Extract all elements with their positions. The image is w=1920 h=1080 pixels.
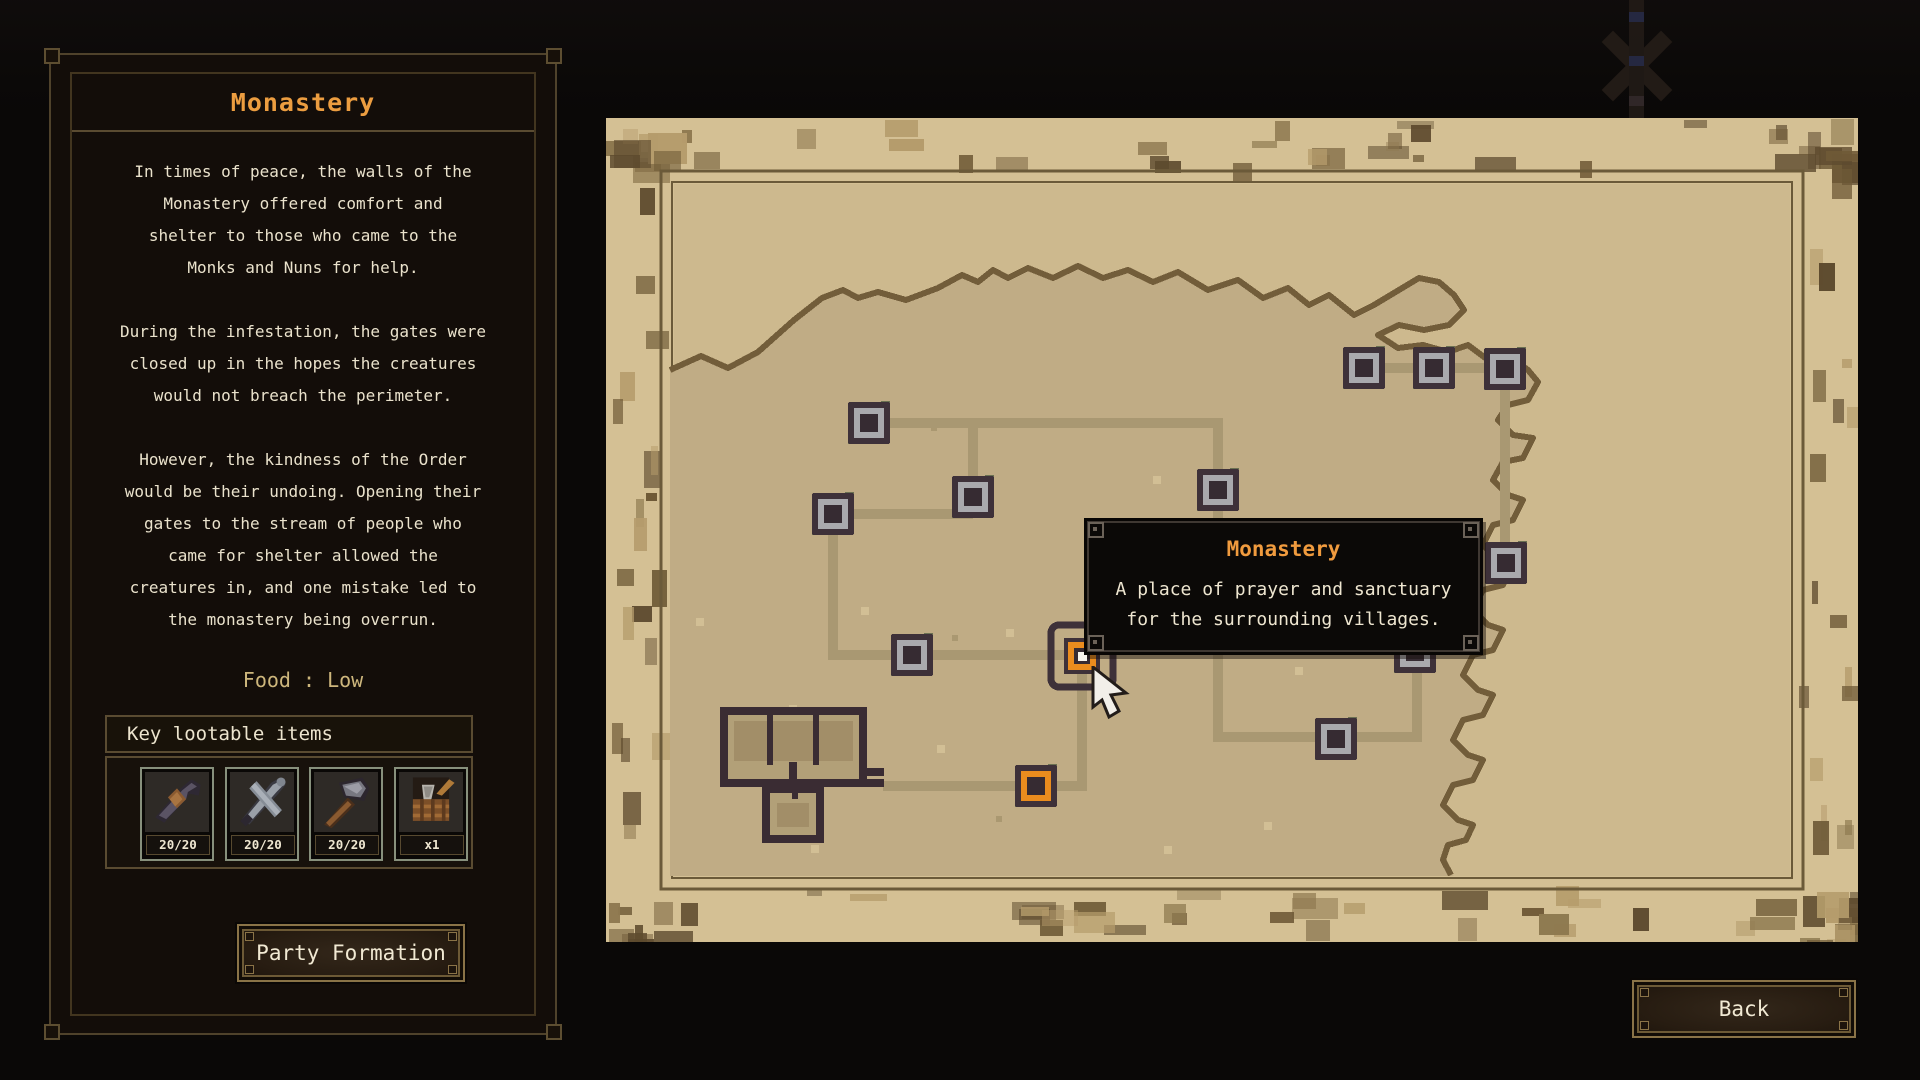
panel-corner-ornament xyxy=(44,1024,60,1040)
sword-icon xyxy=(230,772,294,832)
item-count: 20/20 xyxy=(146,835,210,855)
map-node-n10[interactable] xyxy=(1484,347,1526,390)
button-corner-ornament xyxy=(1640,1021,1649,1030)
supplies-icon xyxy=(399,772,463,832)
button-corner-ornament xyxy=(1640,988,1649,997)
windmill-icon xyxy=(1572,0,1702,125)
panel-inner-frame: Monastery In times of peace, the walls o… xyxy=(70,72,536,1016)
tooltip-corner-ornament xyxy=(1463,522,1479,538)
item-count: 20/20 xyxy=(231,835,295,855)
button-corner-ornament xyxy=(245,965,254,974)
description-paragraph: During the infestation, the gates were c… xyxy=(98,316,508,412)
lootable-items-header: Key lootable items xyxy=(105,715,473,753)
description-paragraph: However, the kindness of the Order would… xyxy=(98,444,508,636)
button-corner-ornament xyxy=(1839,1021,1848,1030)
map-node-n4[interactable] xyxy=(891,633,933,676)
location-description: In times of peace, the walls of the Mona… xyxy=(72,132,534,636)
tooltip-corner-ornament xyxy=(1088,522,1104,538)
map-node-n6[interactable] xyxy=(1015,764,1057,807)
item-slot-dagger[interactable]: 20/20 xyxy=(140,767,214,861)
description-paragraph: In times of peace, the walls of the Mona… xyxy=(98,156,508,284)
hammer-icon xyxy=(314,772,378,832)
map-node-n11[interactable] xyxy=(1485,541,1527,584)
party-formation-button[interactable]: Party Formation xyxy=(237,924,465,982)
item-slot-supplies[interactable]: x1 xyxy=(394,767,468,861)
panel-corner-ornament xyxy=(546,48,562,64)
party-formation-label: Party Formation xyxy=(256,941,446,965)
panel-corner-ornament xyxy=(44,48,60,64)
item-count: 20/20 xyxy=(315,835,379,855)
item-count: x1 xyxy=(400,835,464,855)
map-tooltip: Monastery A place of prayer and sanctuar… xyxy=(1084,518,1483,655)
button-corner-ornament xyxy=(448,965,457,974)
tooltip-body: A place of prayer and sanctuary for the … xyxy=(1087,575,1480,635)
back-label: Back xyxy=(1719,997,1770,1021)
back-button[interactable]: Back xyxy=(1632,980,1856,1038)
map-node-n3[interactable] xyxy=(812,492,854,535)
map-node-n1[interactable] xyxy=(848,401,890,444)
button-corner-ornament xyxy=(1839,988,1848,997)
button-corner-ornament xyxy=(245,932,254,941)
map-node-n12[interactable] xyxy=(1315,717,1357,760)
tooltip-corner-ornament xyxy=(1088,635,1104,651)
item-slot-sword[interactable]: 20/20 xyxy=(225,767,299,861)
lootable-items-box: Key lootable items 20/20 xyxy=(105,715,473,869)
mouse-cursor xyxy=(1090,666,1134,726)
dagger-icon xyxy=(145,772,209,832)
map-node-n2[interactable] xyxy=(952,475,994,518)
item-slot-hammer[interactable]: 20/20 xyxy=(309,767,383,861)
location-title: Monastery xyxy=(72,74,534,132)
tooltip-body-line: A place of prayer and sanctuary xyxy=(1087,575,1480,605)
food-status: Food : Low xyxy=(72,668,534,692)
button-corner-ornament xyxy=(448,932,457,941)
tooltip-title: Monastery xyxy=(1087,537,1480,561)
map-node-n7[interactable] xyxy=(1197,468,1239,511)
lootable-items-row: 20/20 20/20 xyxy=(105,756,473,869)
map-node-n8[interactable] xyxy=(1343,346,1385,389)
panel-corner-ornament xyxy=(546,1024,562,1040)
tooltip-corner-ornament xyxy=(1463,635,1479,651)
tooltip-body-line: for the surrounding villages. xyxy=(1087,605,1480,635)
location-info-panel: Monastery In times of peace, the walls o… xyxy=(49,53,557,1035)
map-node-n9[interactable] xyxy=(1413,346,1455,389)
